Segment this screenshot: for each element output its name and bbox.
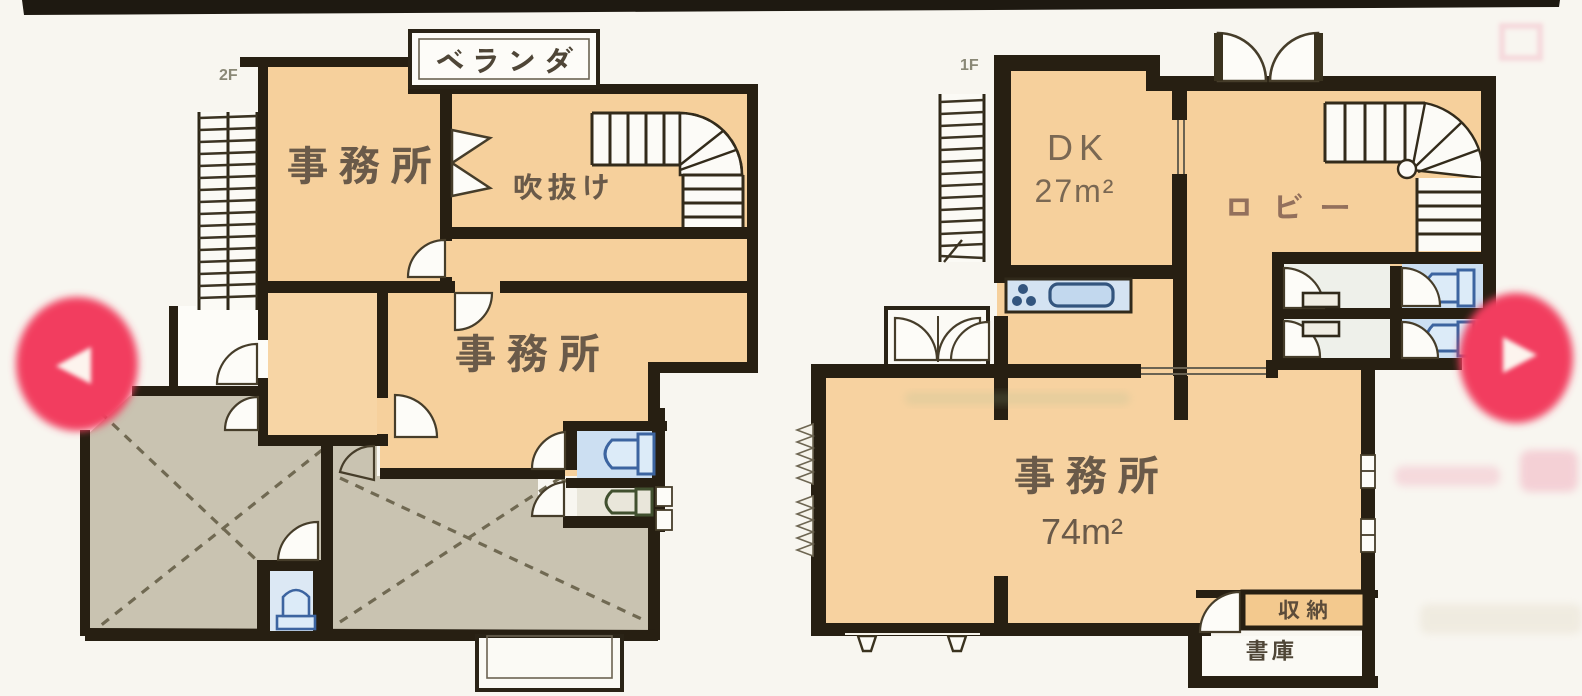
svg-text:2F: 2F: [219, 67, 238, 84]
svg-text:27m²: 27m²: [1035, 173, 1116, 209]
svg-text:74m²: 74m²: [1041, 511, 1123, 552]
svg-text:DK: DK: [1047, 127, 1109, 168]
svg-text:1F: 1F: [960, 57, 979, 74]
